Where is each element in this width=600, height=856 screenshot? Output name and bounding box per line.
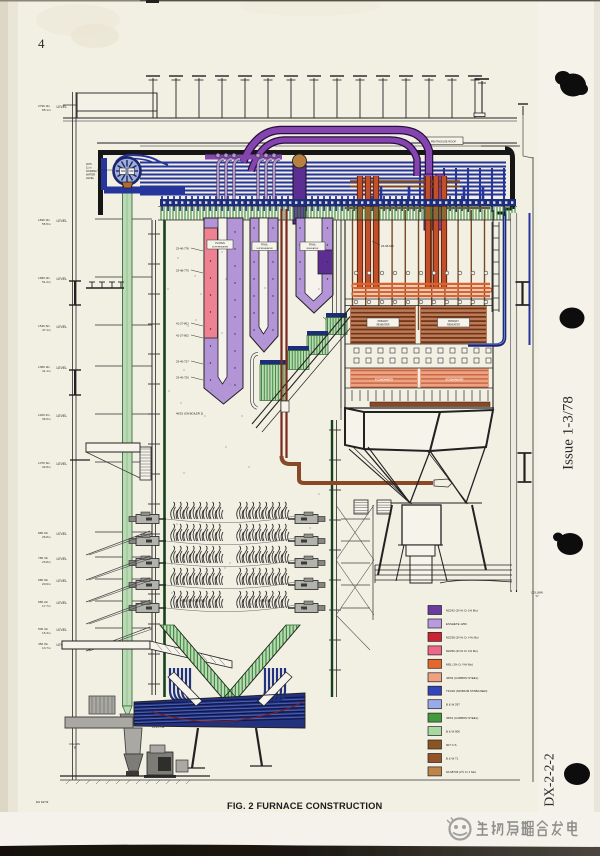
svg-text:11 in: 11 in (86, 166, 92, 170)
svg-text:ECONOMISER: ECONOMISER (446, 378, 464, 382)
svg-text:LEVEL: LEVEL (86, 176, 95, 180)
svg-text:51.2m: 51.2m (42, 280, 51, 284)
svg-text:COLUMN: COLUMN (531, 591, 543, 595)
svg-text:PLATEN: PLATEN (215, 242, 225, 245)
svg-text:207ft: 207ft (86, 162, 92, 166)
svg-text:LEVEL: LEVEL (57, 219, 68, 223)
svg-text:46/52 (CARBON STEEL): 46/52 (CARBON STEEL) (446, 676, 478, 680)
svg-text:LEVEL: LEVEL (57, 462, 68, 466)
svg-text:PRIMARY: PRIMARY (448, 320, 459, 323)
svg-text:B & W 71: B & W 71 (446, 756, 459, 760)
svg-text:46/52 (ON BOILER 2): 46/52 (ON BOILER 2) (180, 599, 205, 603)
svg-text:LEVEL: LEVEL (57, 366, 68, 370)
svg-text:23-40-778: 23-40-778 (176, 247, 189, 251)
svg-text:B & W 906: B & W 906 (446, 730, 460, 734)
svg-text:NORMAL: NORMAL (86, 169, 98, 173)
svg-text:T91/26 (NIOBIUM STABILISED): T91/26 (NIOBIUM STABILISED) (446, 689, 487, 693)
svg-text:LEVEL: LEVEL (57, 601, 68, 605)
svg-text:FIG. 2 FURNACE CONSTRUCTION: FIG. 2 FURNACE CONSTRUCTION (227, 801, 383, 811)
svg-text:47.1m: 47.1m (42, 328, 51, 332)
svg-text:23-40-726: 23-40-726 (176, 376, 189, 380)
svg-text:23-40-775: 23-40-775 (176, 269, 189, 273)
svg-text:23-40-727: 23-40-727 (176, 360, 189, 364)
svg-text:REHEATER: REHEATER (307, 247, 319, 250)
svg-text:REHEATER: REHEATER (377, 323, 390, 326)
svg-text:FINAL: FINAL (309, 244, 317, 247)
svg-text:LEVEL: LEVEL (57, 325, 68, 329)
svg-text:WATER: WATER (86, 173, 95, 177)
svg-text:M2238 (2¼% Cr ¾% Mo): M2238 (2¼% Cr ¾% Mo) (446, 635, 479, 639)
svg-text:LEVEL: LEVEL (57, 628, 68, 632)
svg-text:B & W 297: B & W 297 (446, 703, 460, 707)
svg-text:DA 917/3: DA 917/3 (36, 800, 49, 804)
svg-text:ECONOMISER: ECONOMISER (375, 378, 393, 382)
svg-text:FINAL: FINAL (261, 244, 269, 247)
svg-text:LEVEL: LEVEL (57, 579, 68, 583)
svg-text:13.7m: 13.7m (42, 646, 51, 650)
svg-text:15.3m: 15.3m (42, 631, 51, 635)
svg-text:M2242 (2¼% Cr 1% Mo): M2242 (2¼% Cr 1% Mo) (446, 609, 478, 613)
svg-text:23.8m: 23.8m (42, 560, 51, 564)
svg-text:M91 (1% Cr ½% Mo): M91 (1% Cr ½% Mo) (446, 662, 473, 666)
svg-text:23-41-748: 23-41-748 (152, 725, 165, 729)
svg-text:M2250 (2¼% Cr 1% Mo): M2250 (2¼% Cr 1% Mo) (446, 649, 478, 653)
svg-text:23-38-610: 23-38-610 (381, 244, 394, 248)
svg-text:907 C.S.: 907 C.S. (446, 743, 457, 747)
svg-text:PENTHOUSE ROOF: PENTHOUSE ROOF (431, 139, 457, 143)
svg-text:COLUMN: COLUMN (69, 743, 80, 746)
svg-text:REHEATER: REHEATER (447, 323, 460, 326)
svg-text:SUPERHEATER: SUPERHEATER (212, 245, 229, 248)
svg-text:Issue 1-3/78: Issue 1-3/78 (561, 396, 577, 470)
svg-text:ESSHETE 1250: ESSHETE 1250 (446, 622, 467, 626)
svg-text:“C”: “C” (535, 594, 539, 598)
svg-text:41-27-802: 41-27-802 (176, 334, 189, 338)
svg-text:LEVEL: LEVEL (57, 414, 68, 418)
svg-text:LEVEL: LEVEL (57, 277, 68, 281)
svg-text:17.7m: 17.7m (42, 604, 51, 608)
svg-text:32.8m: 32.8m (42, 465, 51, 469)
svg-text:26.8m: 26.8m (42, 535, 51, 539)
svg-text:66-32-041: 66-32-041 (259, 599, 271, 603)
svg-text:4: 4 (38, 36, 45, 51)
svg-text:55.5m: 55.5m (42, 222, 51, 226)
svg-text:36.0m: 36.0m (42, 417, 51, 421)
svg-text:9A 98733 (2½ Cr 1 Mo): 9A 98733 (2½ Cr 1 Mo) (446, 770, 476, 774)
svg-text:LEVEL: LEVEL (57, 105, 68, 109)
svg-text:SUPERHEATER: SUPERHEATER (256, 247, 273, 250)
svg-text:LEVEL: LEVEL (57, 532, 68, 536)
svg-text:85.1m: 85.1m (42, 108, 51, 112)
svg-text:41.1m: 41.1m (42, 369, 51, 373)
svg-text:45/51 (CARBON STEEL): 45/51 (CARBON STEEL) (446, 716, 478, 720)
svg-text:46/52 (ON BOILER 2): 46/52 (ON BOILER 2) (176, 412, 203, 416)
svg-text:“B”: “B” (73, 747, 77, 750)
svg-text:LEVEL: LEVEL (57, 557, 68, 561)
svg-text:20.9m: 20.9m (42, 582, 51, 586)
svg-text:DX-2-2-2: DX-2-2-2 (542, 753, 557, 806)
svg-text:41-27-801: 41-27-801 (176, 322, 189, 326)
svg-text:PRIMARY: PRIMARY (378, 320, 389, 323)
